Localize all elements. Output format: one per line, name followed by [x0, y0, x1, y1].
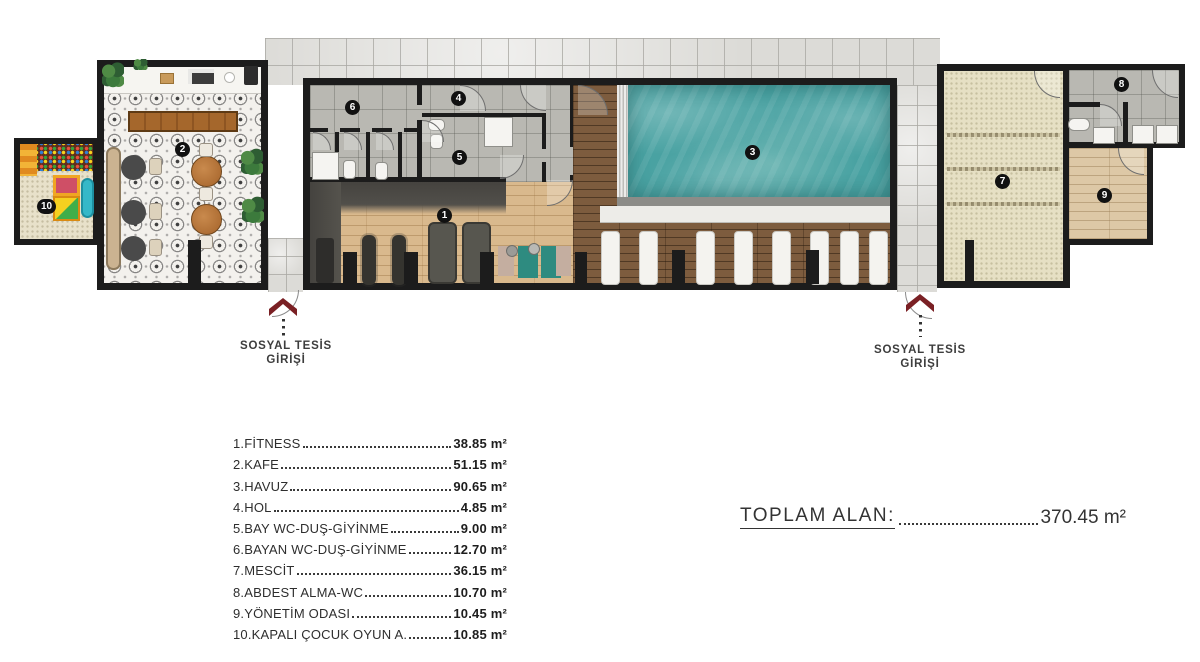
legend-area: 36.15 m² [453, 563, 507, 578]
sink [1068, 118, 1090, 131]
plant [102, 62, 124, 88]
cafe-counter [104, 67, 261, 94]
entrance-dotted-line [919, 315, 922, 337]
plant [133, 59, 148, 70]
spin-bike [362, 235, 376, 285]
cafe-table-wood [191, 156, 222, 187]
pool-water [628, 85, 890, 197]
pool-rim [617, 197, 890, 206]
total-area-value: 370.45 m² [1040, 507, 1126, 529]
exercise-mat [556, 246, 571, 276]
prayer-row-stripe [947, 202, 1060, 206]
shower-stall [312, 152, 339, 180]
wall-pillar [575, 252, 587, 284]
toilet [375, 162, 388, 180]
sun-lounger [696, 231, 715, 285]
play-cube-pink [53, 175, 80, 196]
wall [340, 128, 360, 132]
legend-row: 10.KAPALI ÇOCUK OYUN A.10.85 m² [233, 621, 507, 642]
play-cube-triangles [53, 196, 80, 221]
entrance-arrow-icon [268, 298, 298, 317]
legend-area: 90.65 m² [453, 479, 507, 494]
washbasin-unit [1132, 125, 1154, 144]
sun-lounger [601, 231, 620, 285]
wall [417, 85, 422, 105]
ball-pit [37, 144, 93, 171]
floor-plan-page: 1 2 3 4 5 6 7 8 9 10 SOSYAL TESİS GİRİŞİ… [0, 0, 1200, 662]
cafe-table-dark [121, 200, 146, 225]
room-badge-yonetim: 9 [1097, 188, 1112, 203]
legend-name: 6.BAYAN WC-DUŞ-GİYİNME [233, 542, 407, 557]
wall-pillar [806, 250, 819, 284]
wall [542, 113, 546, 149]
entrance-label-right: SOSYAL TESİS GİRİŞİ [855, 344, 985, 371]
sun-lounger [869, 231, 888, 285]
legend-name: 9.YÖNETİM ODASI [233, 606, 350, 621]
coffee-machine [244, 66, 258, 85]
legend-area: 10.45 m² [453, 606, 507, 621]
wall [404, 128, 418, 132]
room-badge-hol: 4 [451, 91, 466, 106]
wall [372, 128, 392, 132]
legend-row: 2.KAFE51.15 m² [233, 451, 507, 472]
legend-name: 5.BAY WC-DUŞ-GİYİNME [233, 521, 389, 536]
cafe-chair [149, 158, 162, 175]
treadmill [428, 222, 457, 284]
shower-stall [484, 117, 513, 147]
sun-lounger [772, 231, 791, 285]
wall [1123, 102, 1128, 142]
legend-name: 8.ABDEST ALMA-WC [233, 585, 363, 600]
plant [242, 196, 264, 224]
total-area: TOPLAM ALAN: 370.45 m² [740, 505, 1126, 529]
legend-area: 51.15 m² [453, 457, 507, 472]
room-badge-mescit: 7 [995, 174, 1010, 189]
exterior-corridor-right [897, 85, 937, 292]
prayer-row-stripe [947, 133, 1060, 137]
sun-lounger [734, 231, 753, 285]
legend-row: 3.HAVUZ90.65 m² [233, 472, 507, 493]
legend-name: 2.KAFE [233, 457, 279, 472]
washbasin-unit [1093, 127, 1115, 144]
room-badge-havuz: 3 [745, 145, 760, 160]
cafe-table-dark [121, 236, 146, 261]
wall [1066, 102, 1100, 107]
cafe-table-dark [121, 155, 146, 180]
cafe-bench [106, 147, 121, 270]
play-slide [81, 178, 94, 218]
legend-name: 4.HOL [233, 500, 272, 515]
legend-row: 1.FİTNESS38.85 m² [233, 430, 507, 451]
wall-pillar [404, 252, 418, 284]
legend-row: 9.YÖNETİM ODASI10.45 m² [233, 600, 507, 621]
dotted-leader [297, 573, 452, 575]
cafe-chair [199, 143, 213, 157]
legend-row: 6.BAYAN WC-DUŞ-GİYİNME12.70 m² [233, 536, 507, 557]
legend-area: 12.70 m² [453, 542, 507, 557]
dotted-leader [281, 467, 451, 469]
dumbbell [506, 245, 518, 257]
sun-lounger [840, 231, 859, 285]
washbasin-unit [1156, 125, 1178, 144]
cafe-chair [199, 187, 213, 201]
prayer-row-stripe [947, 167, 1060, 171]
cutting-board [160, 73, 174, 84]
area-legend: 1.FİTNESS38.85 m² 2.KAFE51.15 m² 3.HAVUZ… [233, 430, 507, 642]
play-wall-panel [20, 144, 37, 176]
wall-pillar [343, 252, 357, 284]
cafe-chair [199, 235, 213, 249]
dotted-leader [365, 595, 451, 597]
dotted-leader [303, 446, 452, 448]
entrance-dotted-line [282, 319, 285, 339]
legend-name: 7.MESCİT [233, 563, 295, 578]
dotted-leader [899, 523, 1039, 525]
legend-row: 5.BAY WC-DUŞ-GİYİNME9.00 m² [233, 515, 507, 536]
room-badge-oyun: 10 [37, 199, 56, 214]
wall-pillar [480, 252, 494, 284]
legend-row: 7.MESCİT36.15 m² [233, 557, 507, 578]
cafe-sink [188, 69, 214, 84]
legend-name: 1.FİTNESS [233, 436, 301, 451]
room-badge-bayan-wc: 6 [345, 100, 360, 115]
dumbbell [528, 243, 540, 255]
legend-row: 8.ABDEST ALMA-WC10.70 m² [233, 578, 507, 599]
floor-plan: 1 2 3 4 5 6 7 8 9 10 SOSYAL TESİS GİRİŞİ… [0, 0, 1200, 410]
dotted-leader [409, 637, 451, 639]
legend-name: 10.KAPALI ÇOCUK OYUN A. [233, 627, 407, 642]
legend-area: 10.85 m² [453, 627, 507, 642]
legend-name: 3.HAVUZ [233, 479, 288, 494]
dotted-leader [274, 510, 459, 512]
entrance-label-left: SOSYAL TESİS GİRİŞİ [221, 340, 351, 367]
cafe-window-pier [188, 240, 201, 288]
weight-rack [316, 238, 334, 283]
entrance-label-line2: GİRİŞİ [855, 358, 985, 372]
dotted-leader [409, 552, 452, 554]
cafe-chair [149, 239, 162, 256]
legend-row: 4.HOL4.85 m² [233, 494, 507, 515]
cafe-chair [149, 203, 162, 220]
pool-steps [617, 85, 628, 197]
legend-area: 38.85 m² [453, 436, 507, 451]
cafe-bar-counter [128, 111, 238, 132]
entrance-label-line2: GİRİŞİ [221, 354, 351, 368]
entrance-label-line1: SOSYAL TESİS [221, 340, 351, 354]
legend-area: 10.70 m² [453, 585, 507, 600]
entrance-arrow-icon [905, 294, 935, 313]
entrance-vestibule-left [268, 238, 303, 292]
cafe-plate [224, 72, 235, 83]
entrance-label-line1: SOSYAL TESİS [855, 344, 985, 358]
legend-area: 4.85 m² [461, 500, 507, 515]
plant [241, 148, 263, 176]
room-badge-abdest: 8 [1114, 77, 1129, 92]
wall [398, 132, 402, 182]
room-badge-fitness: 1 [437, 208, 452, 223]
cafe-table-wood [191, 204, 222, 235]
pool-ledge [600, 206, 890, 223]
wall [965, 240, 974, 281]
wall-pillar [672, 250, 685, 284]
total-area-label: TOPLAM ALAN: [740, 505, 895, 529]
legend-area: 9.00 m² [461, 521, 507, 536]
dotted-leader [352, 616, 451, 618]
wall [366, 132, 370, 182]
room-badge-bay-wc: 5 [452, 150, 467, 165]
sun-lounger [639, 231, 658, 285]
dotted-leader [391, 531, 459, 533]
toilet [343, 160, 356, 179]
room-badge-kafe: 2 [175, 142, 190, 157]
wall [542, 162, 546, 182]
dotted-leader [290, 489, 451, 491]
